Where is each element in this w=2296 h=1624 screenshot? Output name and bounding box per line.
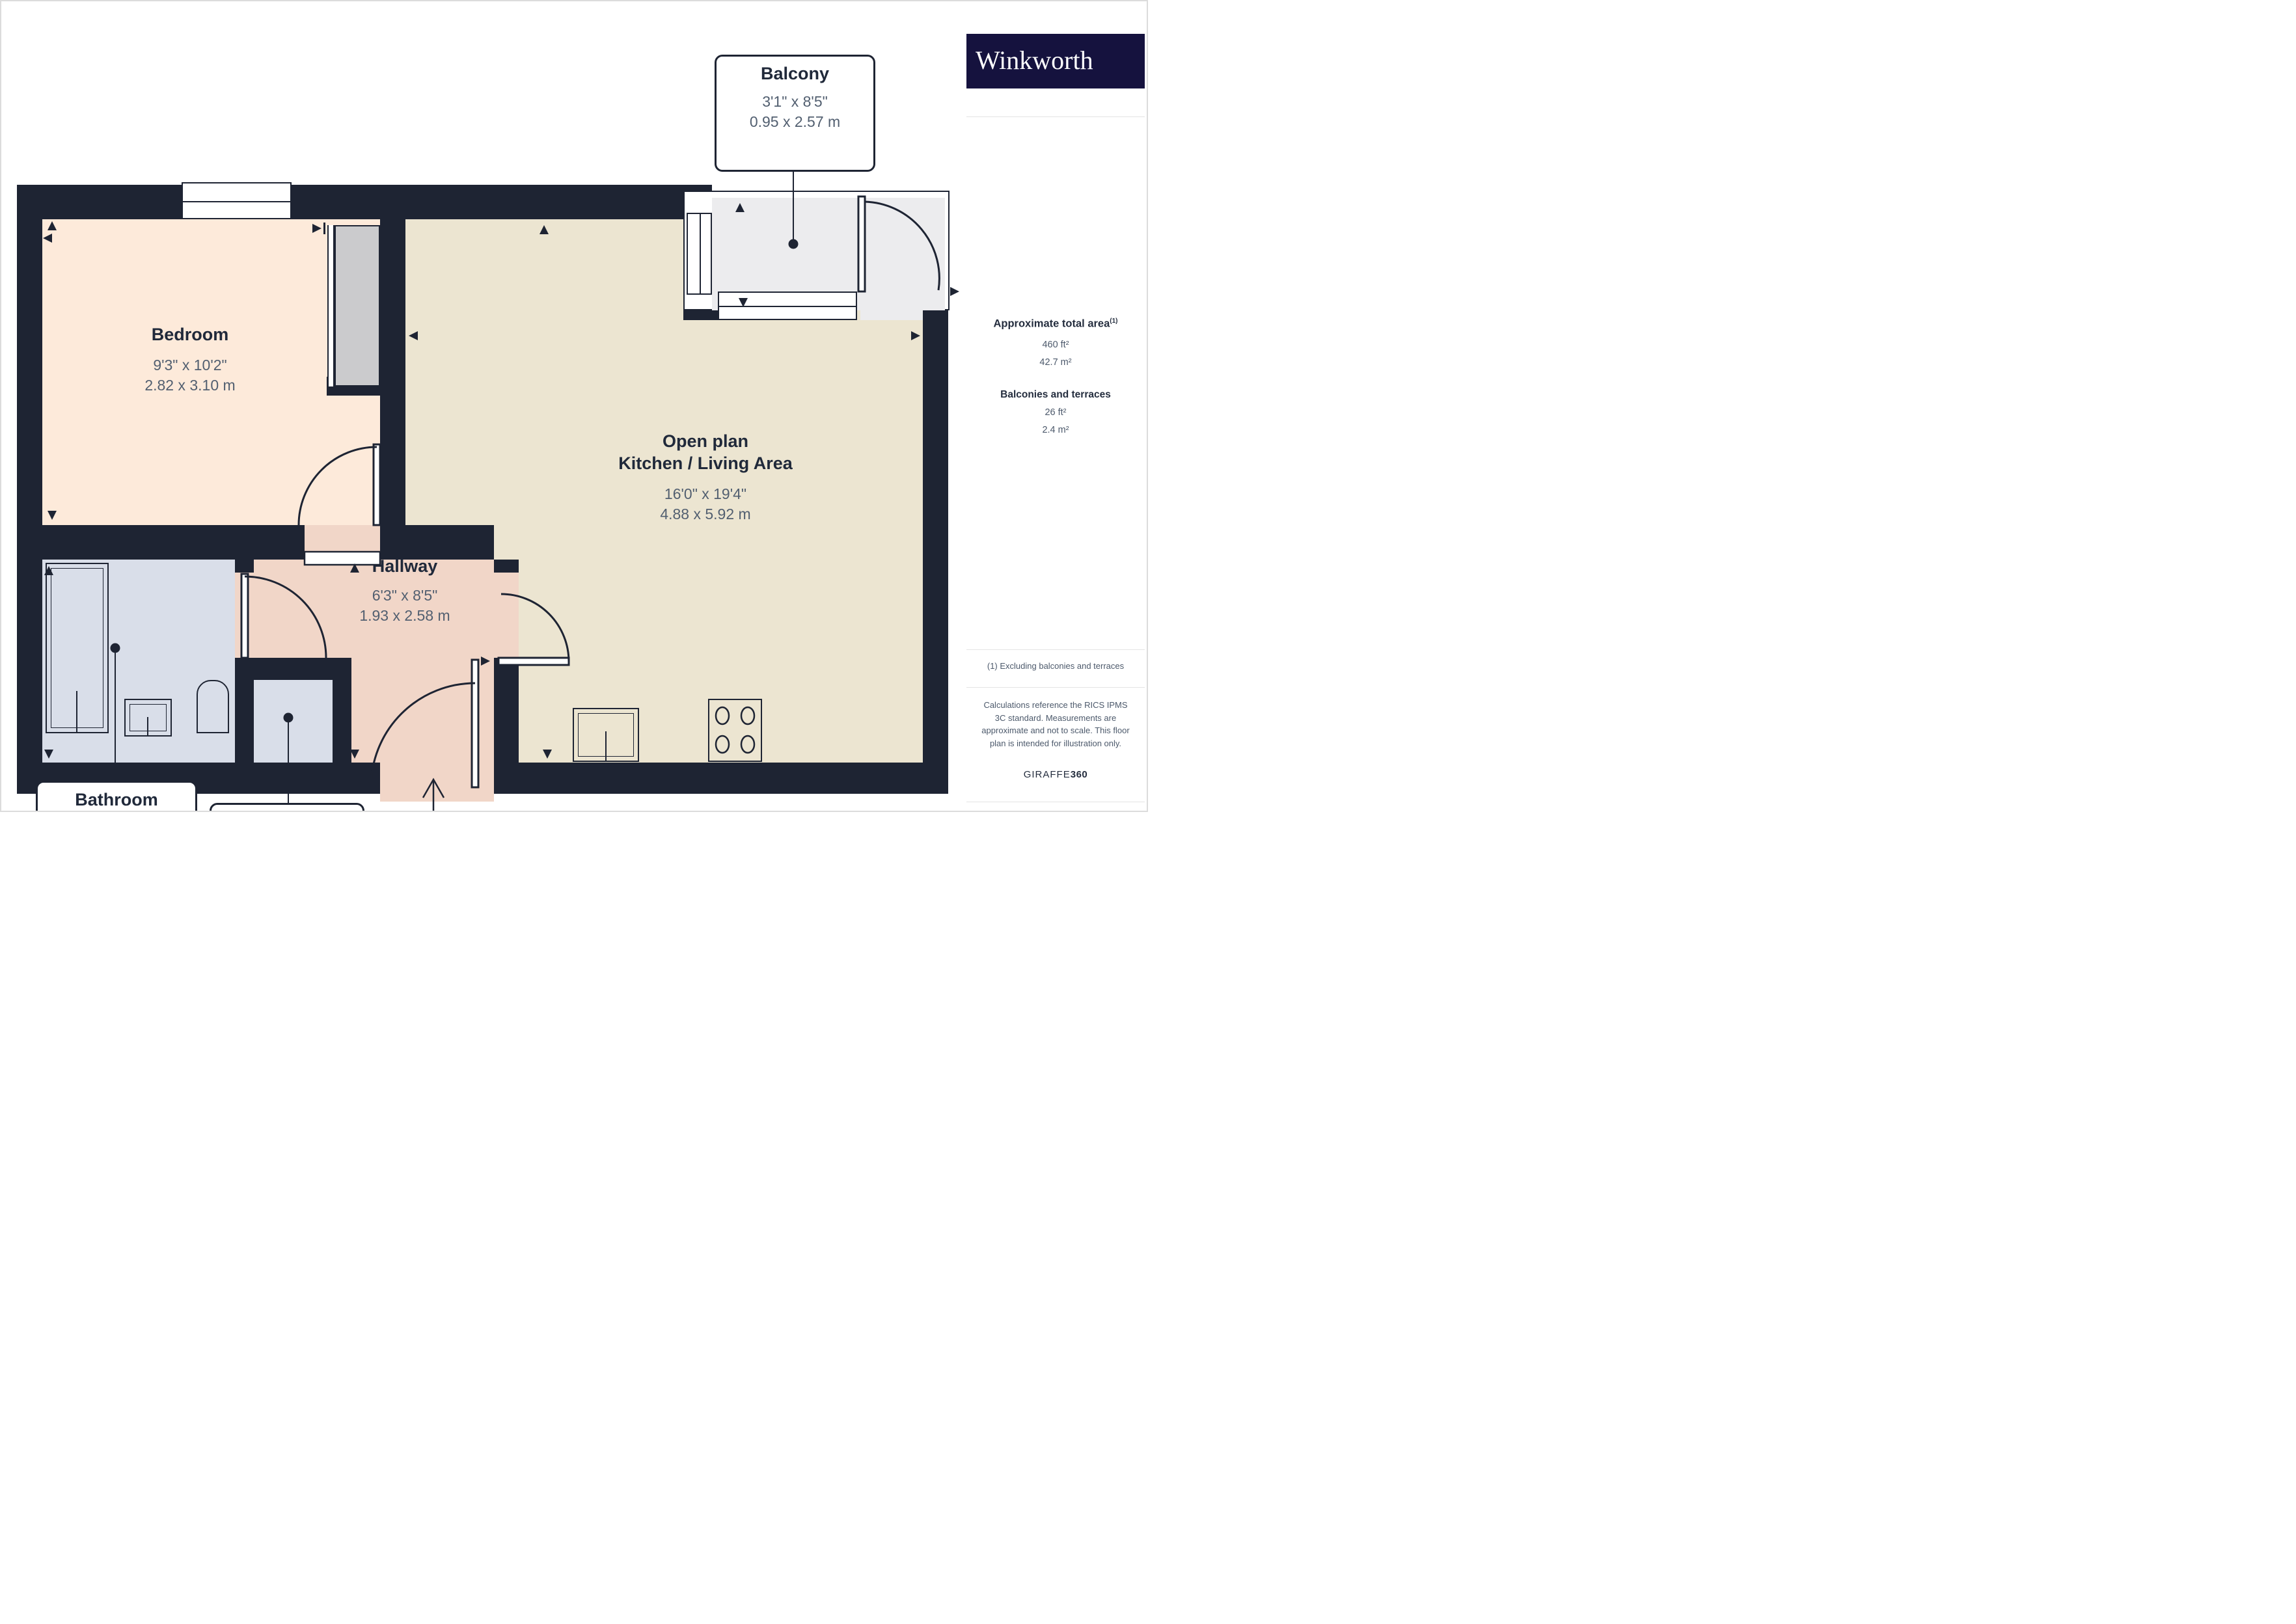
wall-top-right: [292, 185, 712, 219]
sidebar: Winkworth Approximate total area(1) 460 …: [966, 1, 1145, 812]
wall-south-utility: [254, 763, 333, 794]
shower: [46, 563, 109, 733]
toilet: [197, 680, 229, 733]
sidebar-divider-3: [966, 687, 1145, 688]
balcony-door-gap: [860, 291, 923, 320]
total-area-footnote-marker: (1): [1110, 318, 1117, 325]
sidebar-divider-1: [966, 116, 1145, 117]
balcony-side-window: [687, 213, 712, 295]
sidebar-divider-2: [966, 649, 1145, 650]
disclaimer: Calculations reference the RICS IPMS 3C …: [978, 699, 1133, 750]
kitchen-sink: [573, 708, 639, 762]
bedroom-name: Bedroom: [76, 324, 304, 346]
utility-callout: Utility Room: [210, 803, 364, 812]
winkworth-logo-text: Winkworth: [966, 46, 1093, 75]
balconies-title: Balconies and terraces: [966, 389, 1145, 401]
hallway-label: Hallway 6'3" x 8'5" 1.93 x 2.58 m: [297, 556, 512, 627]
hallway-floor-lower: [351, 658, 494, 763]
sidebar-divider-4: [966, 802, 1145, 802]
bathroom-name: Bathroom: [38, 789, 195, 811]
total-area-m: 42.7 m²: [966, 357, 1145, 368]
bathroom-sink: [124, 699, 172, 737]
balconies-ft: 26 ft²: [966, 407, 1145, 418]
bathroom-door-gap: [235, 573, 254, 658]
wall-utility-right: [333, 680, 351, 794]
hallway-dim-metric: 1.93 x 2.58 m: [297, 606, 512, 627]
winkworth-logo: Winkworth: [966, 34, 1145, 88]
wall-south-kitchen: [494, 763, 948, 794]
wall-east-kitchen: [923, 310, 948, 794]
open-plan-name-line1: Open plan: [543, 431, 868, 453]
footnote: (1) Excluding balconies and terraces: [973, 660, 1138, 673]
entrance-vestibule-floor: [380, 763, 494, 802]
balconies-m: 2.4 m²: [966, 425, 1145, 435]
total-area-title-text: Approximate total area: [993, 318, 1110, 330]
bedroom-dim-imperial: 9'3" x 10'2": [76, 355, 304, 376]
wall-bedroom-south-a: [17, 525, 305, 560]
balcony-dim-metric: 0.95 x 2.57 m: [717, 112, 873, 133]
bathroom-callout: Bathroom 5'6" x 6'10" 1.69 x 2.10 m: [36, 781, 197, 812]
bedroom-window: [182, 182, 292, 219]
bedroom-dim-metric: 2.82 x 3.10 m: [76, 375, 304, 396]
balcony-front-window: [718, 291, 857, 320]
bedroom-door-gap: [305, 525, 380, 560]
giraffe360-logo-b: 360: [1071, 769, 1088, 780]
giraffe360-logo-a: GIRAFFE: [1024, 769, 1071, 780]
bedroom-label: Bedroom 9'3" x 10'2" 2.82 x 3.10 m: [76, 324, 304, 396]
utility-floor: [254, 680, 333, 763]
open-plan-name-line2: Kitchen / Living Area: [543, 453, 868, 475]
hallway-name: Hallway: [297, 556, 512, 578]
total-area-title: Approximate total area(1): [966, 318, 1145, 331]
open-plan-dim-metric: 4.88 x 5.92 m: [543, 504, 868, 525]
open-plan-dim-imperial: 16'0" x 19'4": [543, 484, 868, 505]
floorplan-page: Bedroom 9'3" x 10'2" 2.82 x 3.10 m Open …: [0, 0, 1148, 812]
wall-bedroom-south-b: [380, 525, 494, 560]
balcony-name: Balcony: [717, 63, 873, 85]
closet: [335, 225, 380, 386]
hallway-dim-imperial: 6'3" x 8'5": [297, 586, 512, 606]
balcony-callout: Balcony 3'1" x 8'5" 0.95 x 2.57 m: [715, 55, 875, 172]
wall-utility-left: [235, 658, 254, 794]
giraffe360-logo: GIRAFFE360: [966, 769, 1145, 780]
stove: [708, 699, 762, 762]
wall-bath-hall-a: [235, 560, 254, 573]
wall-west: [17, 185, 42, 794]
total-area-ft: 460 ft²: [966, 340, 1145, 350]
closet-sliding-door: [327, 225, 335, 386]
open-plan-label: Open plan Kitchen / Living Area 16'0" x …: [543, 431, 868, 525]
wall-south-hall: [351, 763, 380, 794]
balcony-dim-imperial: 3'1" x 8'5": [717, 92, 873, 113]
wall-bedroom-kitchen: [380, 219, 405, 525]
